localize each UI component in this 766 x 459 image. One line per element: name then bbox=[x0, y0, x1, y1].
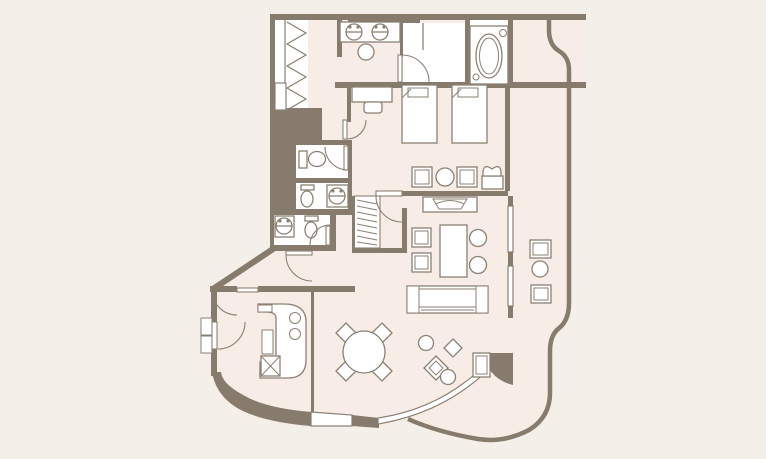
floor-plan bbox=[0, 0, 766, 459]
desk bbox=[352, 87, 392, 102]
wall-bath-west bbox=[465, 20, 470, 82]
sink-c-tap-b bbox=[286, 219, 289, 222]
window-east-1 bbox=[508, 206, 513, 252]
ottoman-1 bbox=[419, 336, 434, 351]
window-east-2 bbox=[508, 266, 513, 306]
wall-toilet-b-bottom bbox=[296, 209, 352, 215]
burner-1 bbox=[290, 313, 301, 324]
wall-washroom-left bbox=[270, 215, 274, 248]
vanity-sink-right-tap-a bbox=[374, 25, 377, 28]
wall-kitchen-top-b bbox=[258, 286, 355, 292]
sink-b-tap-a bbox=[331, 189, 334, 192]
toilet-b-bowl bbox=[301, 191, 313, 207]
entry-door2-leaf bbox=[212, 322, 217, 349]
toilet-a-bowl bbox=[309, 152, 326, 167]
toilet-a-door-leaf bbox=[344, 146, 348, 170]
floor-plan-svg bbox=[0, 0, 766, 459]
sofa-arm-left bbox=[407, 286, 419, 313]
desk-chair bbox=[364, 102, 382, 113]
balcony-table bbox=[532, 261, 548, 277]
wall-left-band bbox=[270, 145, 296, 215]
kitchen-faucet bbox=[258, 305, 272, 312]
kitchen-sink bbox=[262, 330, 273, 354]
sink-c-tap-a bbox=[278, 219, 281, 222]
kitchen-cabinet-1 bbox=[201, 318, 212, 335]
closet-shelf bbox=[275, 83, 286, 110]
bedroom-side-table bbox=[436, 168, 454, 186]
toilet-b-tank bbox=[301, 185, 314, 190]
window-kitchen-south bbox=[311, 412, 352, 426]
vanity-sink-left-tap-a bbox=[348, 25, 351, 28]
wall-toilet-divider bbox=[296, 178, 348, 183]
work-table bbox=[440, 225, 467, 277]
sofa-arm-right bbox=[476, 286, 488, 313]
hall-closet-door-leaf bbox=[376, 191, 402, 196]
wall-toilet-a-top bbox=[296, 140, 352, 145]
burner-2 bbox=[290, 329, 301, 340]
wall-bedroom-east bbox=[505, 88, 510, 191]
entry-door-leaf bbox=[237, 288, 258, 292]
bathtub-drain bbox=[473, 74, 479, 80]
wall-block bbox=[270, 108, 322, 145]
sofa-seat bbox=[419, 289, 476, 307]
wall-kitchen-inner bbox=[311, 292, 314, 414]
toilet-c-bowl bbox=[305, 222, 317, 238]
wall-hall-bottom bbox=[352, 248, 407, 253]
wall-bath-east bbox=[508, 20, 513, 82]
wall-top bbox=[270, 14, 586, 20]
plant-pot bbox=[482, 176, 503, 189]
round-chair-2 bbox=[470, 257, 487, 274]
wall-left bbox=[270, 14, 275, 110]
vanity-sink-left-tap-b bbox=[356, 25, 359, 28]
ottoman-2 bbox=[441, 370, 456, 385]
bathtub-faucet bbox=[500, 30, 507, 37]
wall-window-stub-1 bbox=[508, 196, 513, 206]
vestibule-door-leaf bbox=[286, 251, 312, 255]
wall-washroom-bottom bbox=[274, 245, 336, 251]
room-shower-floor bbox=[403, 23, 465, 82]
dining-table bbox=[343, 331, 385, 373]
toilet-a-tank bbox=[299, 151, 307, 168]
wall-hall-right bbox=[402, 208, 407, 253]
wall-window-stub-2 bbox=[508, 252, 513, 266]
round-chair-1 bbox=[470, 230, 487, 247]
kitchen-cabinet-2 bbox=[201, 336, 212, 353]
vanity-sink-right-tap-b bbox=[382, 25, 385, 28]
wall-window-stub-3 bbox=[508, 306, 513, 318]
bedroom-door-leaf bbox=[343, 120, 347, 139]
washroom-door-leaf bbox=[326, 226, 330, 245]
toilet-c-tank bbox=[305, 216, 318, 221]
vanity-stool bbox=[358, 44, 374, 60]
wall-bedroom-west-a bbox=[347, 87, 351, 122]
wall-living-north bbox=[398, 191, 508, 196]
sink-b-tap-b bbox=[339, 189, 342, 192]
shower-door-leaf bbox=[398, 55, 402, 82]
